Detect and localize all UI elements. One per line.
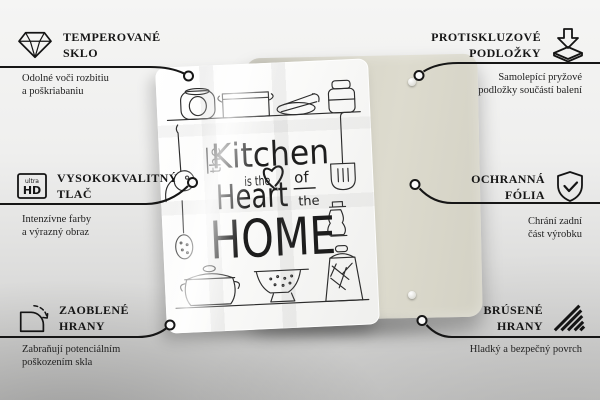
callout-header: BRÚSENÉ HRANY (396, 302, 586, 334)
callout-header: PROTISKLUZOVÉ PODLOŽKY (396, 27, 586, 63)
callout-subtitle: Intenzívne farby a výrazný obraz (16, 213, 206, 239)
callout-subtitle: Zabraňují potenciálním poškozením skla (16, 343, 206, 369)
callout-rounded-edges: ZAOBLENÉ HRANY Zabraňují potenciálním po… (16, 302, 206, 369)
ground-edges-icon (552, 302, 586, 334)
callout-subtitle: Odolné voči rozbitiu a poškriabaniu (16, 72, 206, 98)
callout-tempered-glass: TEMPEROVANÉ SKLO Odolné voči rozbitiu a … (16, 29, 206, 98)
anti-slip-pad-icon (550, 27, 586, 63)
callout-ground-edges: BRÚSENÉ HRANY Hladký a bezpečný povrch (396, 302, 586, 356)
callout-high-quality-print: ultra HD VYSOKOKVALITNÝ TLAČ Intenzívne … (16, 170, 206, 239)
callout-title: BRÚSENÉ HRANY (484, 302, 543, 334)
anti-slip-pad (408, 291, 416, 299)
callout-title: TEMPEROVANÉ SKLO (63, 29, 161, 61)
callout-subtitle: Samolepící pryžové podložky součástí bal… (396, 71, 586, 97)
callout-subtitle: Chrání zadní část výrobku (396, 215, 586, 241)
callout-title: OCHRANNÁ FÓLIA (471, 171, 545, 203)
callout-title: ZAOBLENÉ HRANY (59, 302, 129, 334)
callout-header: ultra HD VYSOKOKVALITNÝ TLAČ (16, 170, 206, 202)
callout-header: TEMPEROVANÉ SKLO (16, 29, 206, 61)
diamond-icon (16, 29, 54, 61)
svg-text:HD: HD (23, 184, 41, 197)
shield-check-icon (554, 170, 586, 204)
callout-title: PROTISKLUZOVÉ PODLOŽKY (431, 29, 541, 61)
callout-header: OCHRANNÁ FÓLIA (396, 170, 586, 204)
callout-protective-film: OCHRANNÁ FÓLIA Chrání zadní část výrobku (396, 170, 586, 241)
callout-header: ZAOBLENÉ HRANY (16, 302, 206, 334)
callout-anti-slip-pads: PROTISKLUZOVÉ PODLOŽKY Samolepící pryžov… (396, 27, 586, 97)
callout-subtitle: Hladký a bezpečný povrch (396, 343, 586, 356)
product-infographic: { "board": { "quote": { "word_the_1": "t… (0, 0, 600, 400)
rounded-corner-icon (16, 302, 50, 334)
callout-title: VYSOKOKVALITNÝ TLAČ (57, 170, 178, 202)
ultra-hd-icon: ultra HD (16, 172, 48, 200)
